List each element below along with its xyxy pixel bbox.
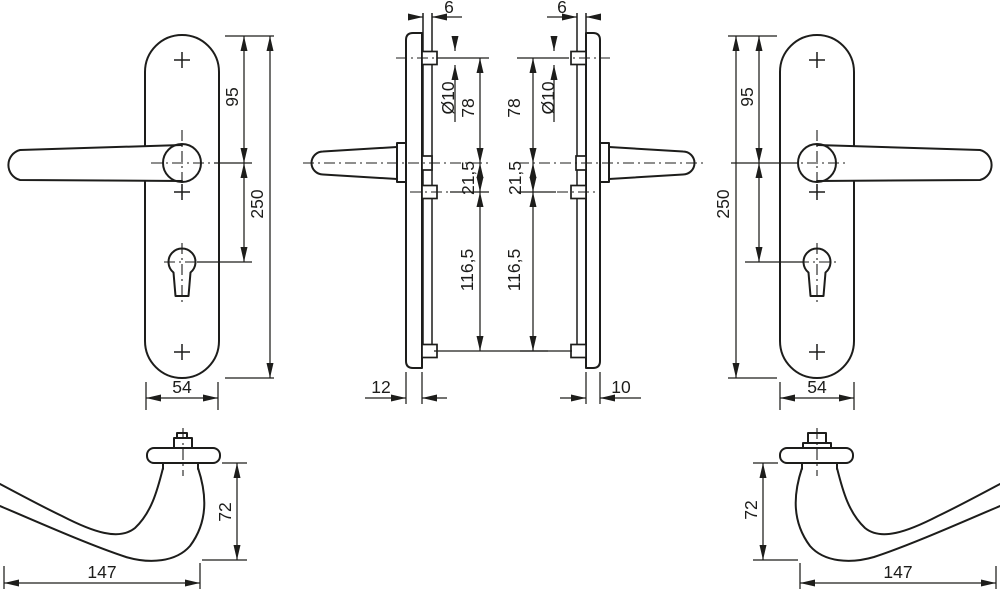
door-handle-dimension-drawing: 95 250 54 6 Ø10 78 21,5 116,5 12 (0, 0, 1000, 589)
dim-label-250: 250 (713, 189, 733, 218)
dim-label-78: 78 (504, 98, 524, 117)
dim-label-116-5: 116,5 (457, 249, 477, 292)
dim-label-dia10: Ø10 (538, 81, 558, 114)
screw-mark-bottom (174, 344, 190, 360)
dim-label-10: 10 (611, 377, 631, 397)
front-view-right: 95 250 54 (713, 35, 992, 410)
thickness-extension-lines (586, 372, 600, 404)
dim-label-147: 147 (883, 562, 912, 582)
front-view-left: 95 250 54 (8, 35, 274, 410)
dim-label-54: 54 (172, 377, 192, 397)
dim-label-21-5: 21,5 (505, 161, 525, 195)
extension-lines (753, 463, 996, 589)
side-view-right: 6 Ø10 78 21,5 116,5 10 (504, 0, 703, 404)
dim-label-6: 6 (444, 0, 454, 17)
dim-label-72: 72 (215, 502, 235, 521)
dim-label-dia10: Ø10 (438, 81, 458, 114)
dim-label-54: 54 (807, 377, 827, 397)
plate-profile (406, 33, 422, 368)
lever-profile-right: 72 147 (741, 428, 1000, 589)
thickness-extension-lines (406, 372, 422, 404)
screw-mark-top (174, 52, 190, 68)
dim-label-6: 6 (557, 0, 567, 17)
keyhole-centerline (798, 243, 836, 302)
handle-collar (397, 143, 406, 182)
screw-mark-middle (174, 184, 190, 200)
side-view-left: 6 Ø10 78 21,5 116,5 12 (303, 0, 548, 404)
screw-mark-middle (809, 184, 825, 200)
plate-profile (586, 33, 600, 368)
dim-label-78: 78 (458, 98, 478, 117)
screw-mark-bottom (809, 344, 825, 360)
dim-label-21-5: 21,5 (458, 161, 478, 195)
backplate-outline (780, 35, 854, 378)
dim-label-95: 95 (222, 87, 242, 106)
grip-outer-curve (0, 468, 204, 561)
grip-inner-curve (0, 468, 163, 534)
extension-lines (146, 36, 274, 410)
dim-label-147: 147 (87, 562, 116, 582)
grip-outer-curve (796, 468, 1000, 561)
grip-inner-curve (837, 468, 1000, 534)
technical-drawing-page: 95 250 54 6 Ø10 78 21,5 116,5 12 (0, 0, 1000, 589)
dim-label-95: 95 (737, 87, 757, 106)
extension-lines (4, 463, 247, 589)
dim-label-116-5: 116,5 (504, 249, 524, 292)
backplate-outline (145, 35, 219, 378)
dim-label-72: 72 (741, 500, 761, 519)
dim-label-12: 12 (371, 377, 390, 397)
keyhole-centerline (164, 243, 202, 302)
lever-profile-left: 72 147 (0, 428, 247, 589)
dim-label-250: 250 (247, 189, 267, 218)
screw-mark-top (809, 52, 825, 68)
fixing-lug-bottom (571, 345, 586, 358)
